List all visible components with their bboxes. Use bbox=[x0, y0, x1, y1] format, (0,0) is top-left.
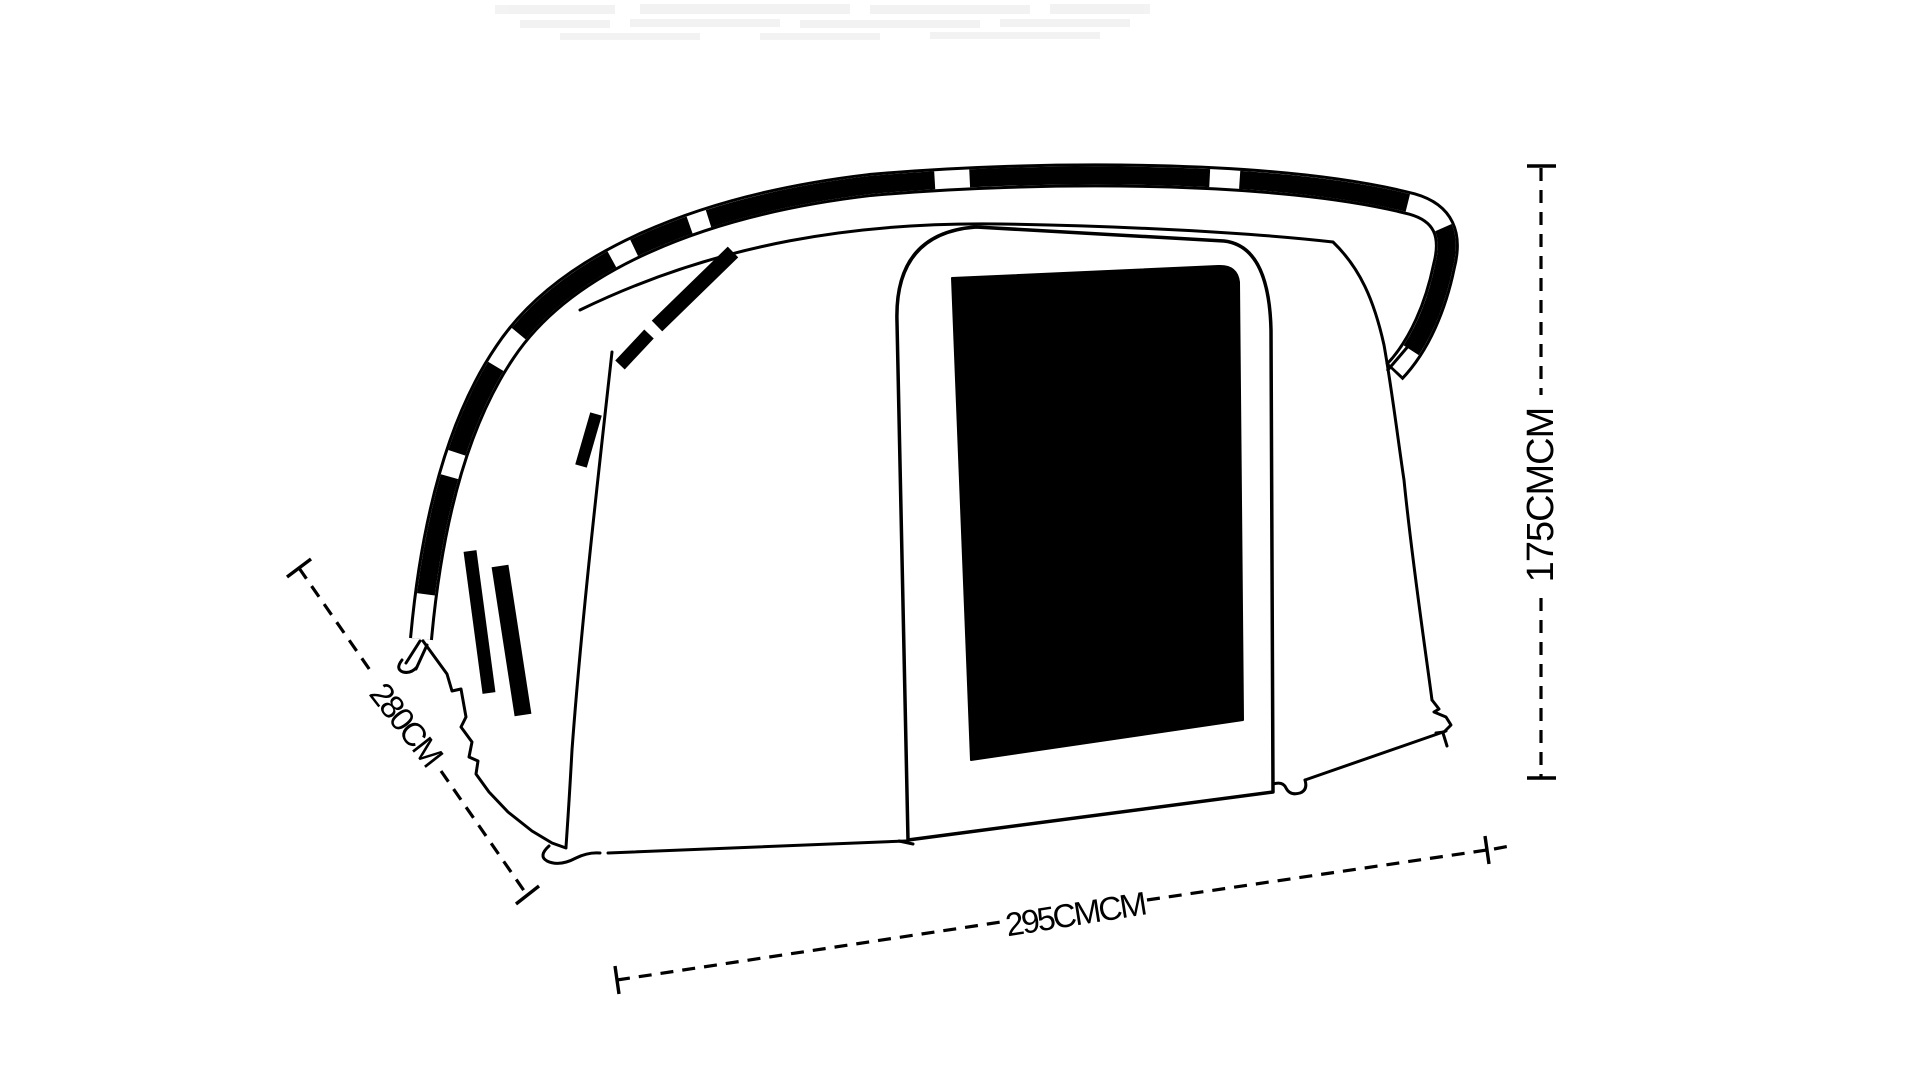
tent-dimension-diagram-page: 280CM 175CMCM 295CMCM bbox=[0, 0, 1920, 1080]
depth-dash-1 bbox=[299, 568, 372, 673]
rear-pole-segments bbox=[470, 252, 733, 715]
tent-body-outline bbox=[399, 224, 1451, 864]
width-dash-overrun bbox=[1494, 846, 1510, 849]
pole-foot-fork bbox=[399, 641, 427, 672]
pole-band-segments bbox=[421, 175, 1447, 639]
tent-illustration bbox=[399, 175, 1451, 863]
door-left-foot bbox=[899, 841, 913, 844]
rear-pole-segment bbox=[581, 414, 596, 466]
top-artifact-strip bbox=[495, 4, 1150, 40]
bottom-edge bbox=[608, 841, 906, 853]
depth-tick-end bbox=[516, 886, 539, 904]
dimension-width: 295CMCM bbox=[615, 836, 1510, 994]
right-corner-peg bbox=[1432, 700, 1451, 746]
rear-pole-segment bbox=[470, 551, 489, 693]
right-ground-foot bbox=[1273, 780, 1306, 794]
pole-band-fill bbox=[421, 175, 1447, 639]
dimension-depth-label: 280CM bbox=[363, 676, 450, 773]
tent-dimension-diagram: 280CM 175CMCM 295CMCM bbox=[0, 0, 1920, 1080]
width-dash-1 bbox=[617, 922, 1001, 980]
rear-pole-segment bbox=[620, 334, 649, 365]
pole-band-outline bbox=[421, 175, 1447, 639]
left-ground-foot bbox=[543, 846, 600, 863]
width-dash-2 bbox=[1147, 850, 1487, 900]
front-pole-arc bbox=[421, 175, 1447, 639]
depth-dash-2 bbox=[441, 771, 527, 895]
width-tick-right bbox=[1485, 836, 1489, 864]
dimension-width-label: 295CMCM bbox=[1003, 885, 1147, 943]
bottom-right-edge bbox=[1305, 731, 1446, 780]
dimension-height: 175CMCM bbox=[1520, 166, 1562, 778]
rear-pole-segment bbox=[500, 566, 523, 715]
dimension-height-label: 175CMCM bbox=[1520, 408, 1562, 583]
door bbox=[897, 227, 1273, 840]
door-panel-black bbox=[952, 266, 1243, 760]
